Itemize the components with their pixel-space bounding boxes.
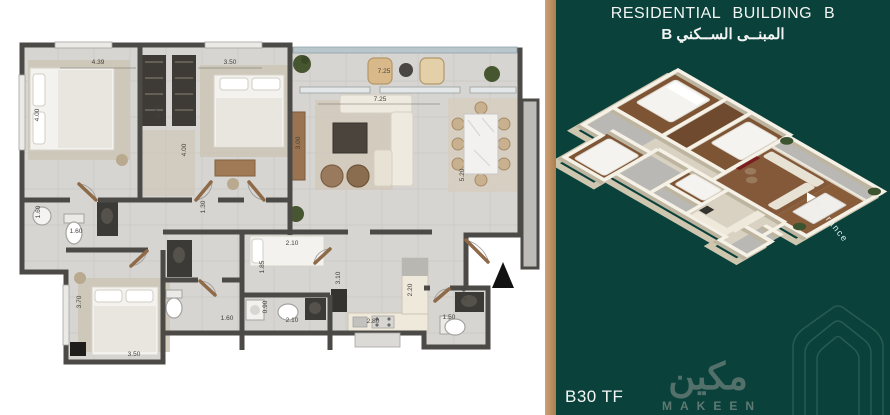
- dimension-label: 0.70: [155, 105, 162, 118]
- building-title-ar: المبنــى الســكني B: [556, 24, 890, 46]
- makeen-logo: مكين MAKEEN: [633, 357, 783, 413]
- dimension-label: 2.80: [367, 318, 380, 325]
- dimension-label: 1.30: [200, 200, 207, 213]
- makeen-logo-latin: MAKEEN: [633, 399, 783, 413]
- dimension-label: 2.00: [461, 287, 468, 300]
- makeen-logo-arabic: مكين: [633, 357, 783, 397]
- dimension-label: 1.60: [70, 228, 83, 235]
- building-title-en: RESIDENTIAL BUILDING B: [556, 3, 890, 24]
- unit-code: B30 TF: [565, 387, 623, 407]
- dimension-label: 2.20: [407, 283, 414, 296]
- floor-plan-svg: 4.39 3.50 4.00 4.00 0.70 7.25 7.25 3.00 …: [0, 0, 545, 415]
- dimension-label: 3.00: [295, 136, 302, 149]
- dimension-label: 5.20: [459, 168, 466, 181]
- dimension-label: 4.00: [181, 143, 188, 156]
- dimension-label: 4.39: [92, 59, 105, 66]
- dimension-label: 4.00: [34, 108, 41, 121]
- arch-watermark-icon: [782, 299, 890, 415]
- dimension-label: 1.60: [35, 205, 42, 218]
- dimension-label: 3.50: [224, 59, 237, 66]
- dimension-label: 0.90: [262, 300, 269, 313]
- floor-plan-2d: 4.39 3.50 4.00 4.00 0.70 7.25 7.25 3.00 …: [0, 0, 545, 415]
- screenshot-root: 4.39 3.50 4.00 4.00 0.70 7.25 7.25 3.00 …: [0, 0, 890, 415]
- dimension-label: 1.85: [259, 260, 266, 273]
- dimension-label: 7.25: [378, 68, 391, 75]
- dimension-label: 1.50: [443, 314, 456, 321]
- brand-panel: RESIDENTIAL BUILDING B المبنــى الســكني…: [545, 0, 890, 415]
- dimension-label: 3.50: [128, 351, 141, 358]
- dimension-label: 3.10: [335, 271, 342, 284]
- dimension-label: 1.60: [221, 315, 234, 322]
- entrance-arrow-marker: [492, 262, 514, 288]
- dimension-label: 7.25: [374, 96, 387, 103]
- entrance-direction-icon: [807, 192, 816, 202]
- dimension-label: 3.70: [76, 295, 83, 308]
- dimension-label: 2.10: [286, 317, 299, 324]
- panel-header: RESIDENTIAL BUILDING B المبنــى الســكني…: [556, 3, 890, 46]
- dimension-label: 2.10: [286, 240, 299, 247]
- floor-plan-3d: [556, 48, 890, 298]
- gold-strip: [545, 0, 556, 415]
